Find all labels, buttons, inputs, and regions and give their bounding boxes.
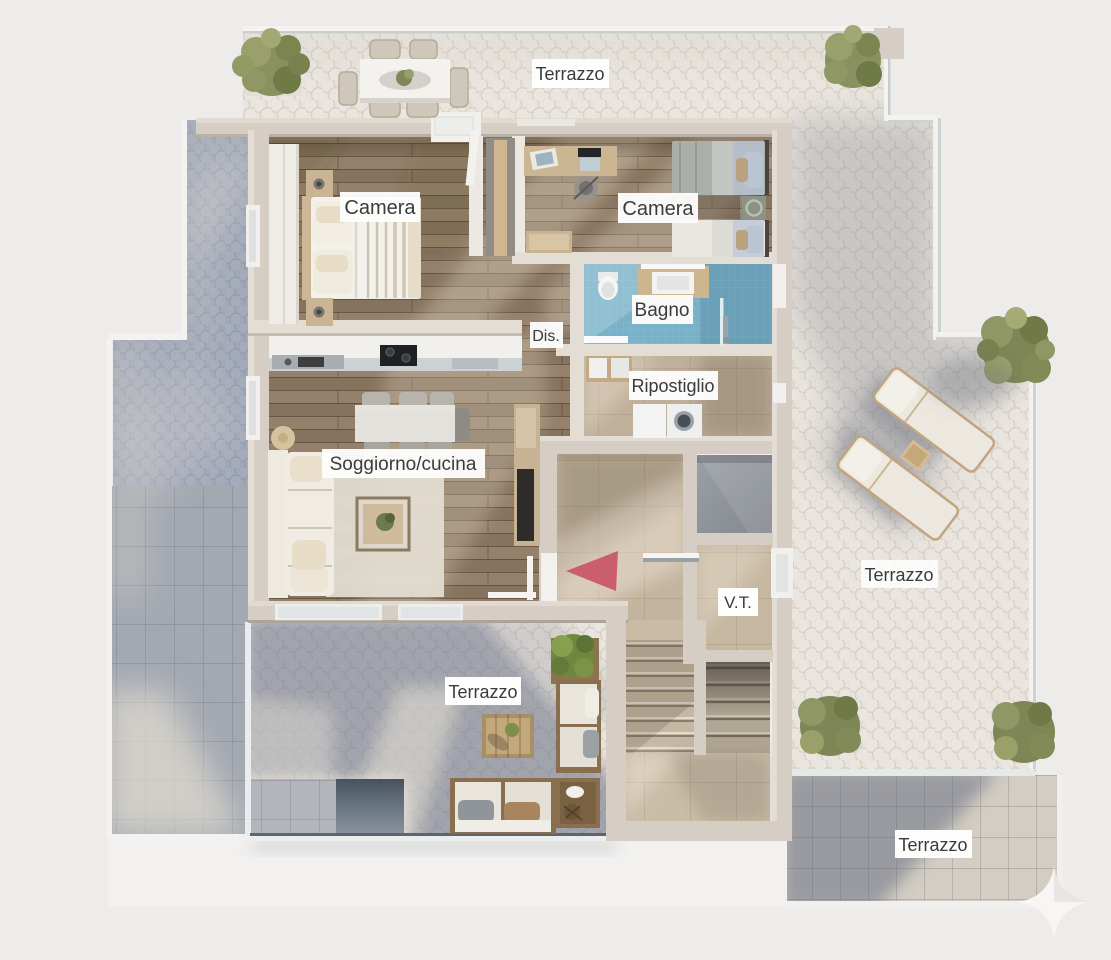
svg-text:Terrazzo: Terrazzo — [535, 64, 604, 84]
svg-text:Terrazzo: Terrazzo — [448, 682, 517, 702]
svg-text:V.T.: V.T. — [724, 593, 752, 612]
svg-text:Soggiorno/cucina: Soggiorno/cucina — [330, 454, 477, 475]
svg-text:Camera: Camera — [344, 197, 416, 219]
svg-text:Dis.: Dis. — [532, 328, 560, 345]
svg-text:Ripostiglio: Ripostiglio — [631, 376, 714, 396]
svg-text:Camera: Camera — [622, 198, 694, 220]
svg-text:Bagno: Bagno — [635, 300, 690, 321]
svg-text:Terrazzo: Terrazzo — [898, 835, 967, 855]
svg-text:Terrazzo: Terrazzo — [864, 565, 933, 585]
